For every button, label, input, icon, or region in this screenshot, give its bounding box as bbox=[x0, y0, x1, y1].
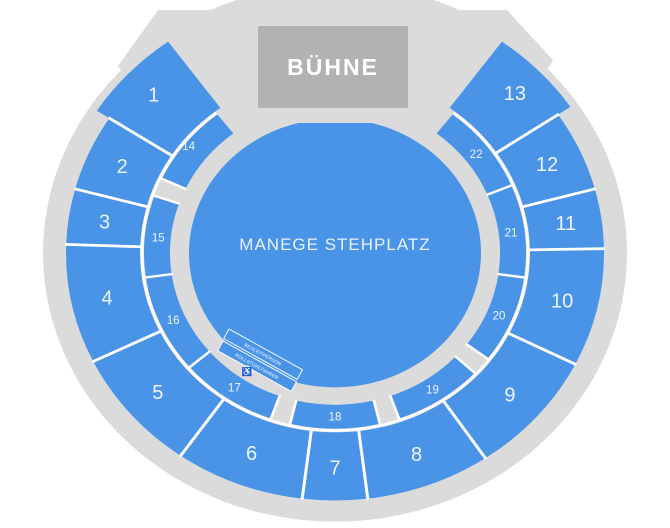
section-label-18: 18 bbox=[329, 411, 342, 423]
section-label-10: 10 bbox=[551, 291, 573, 313]
seat-map: BÜHNE MANEGE STEHPLATZ 12345678910111213… bbox=[0, 0, 670, 528]
section-divider bbox=[529, 249, 605, 250]
section-label-4: 4 bbox=[102, 288, 113, 310]
stage-label: BÜHNE bbox=[287, 54, 379, 80]
section-label-13: 13 bbox=[504, 83, 526, 105]
wheelchair-icon-glyph: ♿ bbox=[242, 366, 253, 376]
floor-label: MANEGE STEHPLATZ bbox=[239, 235, 430, 254]
section-label-20: 20 bbox=[493, 311, 506, 323]
venue-map-svg: BÜHNE MANEGE STEHPLATZ 12345678910111213… bbox=[0, 0, 670, 528]
section-label-9: 9 bbox=[504, 385, 515, 407]
section-label-8: 8 bbox=[411, 444, 422, 466]
section-label-3: 3 bbox=[99, 211, 110, 233]
section-label-1: 1 bbox=[148, 85, 159, 107]
section-label-2: 2 bbox=[117, 156, 128, 178]
section-label-22: 22 bbox=[470, 149, 483, 161]
section-label-17: 17 bbox=[228, 383, 241, 395]
section-label-21: 21 bbox=[505, 227, 518, 239]
section-label-5: 5 bbox=[152, 382, 163, 404]
section-label-6: 6 bbox=[246, 443, 257, 465]
section-label-15: 15 bbox=[152, 232, 165, 244]
section-label-14: 14 bbox=[182, 141, 195, 153]
section-label-11: 11 bbox=[555, 213, 576, 235]
section-label-16: 16 bbox=[167, 315, 180, 327]
section-label-7: 7 bbox=[329, 457, 340, 479]
section-label-12: 12 bbox=[536, 154, 558, 176]
section-label-19: 19 bbox=[426, 385, 439, 397]
